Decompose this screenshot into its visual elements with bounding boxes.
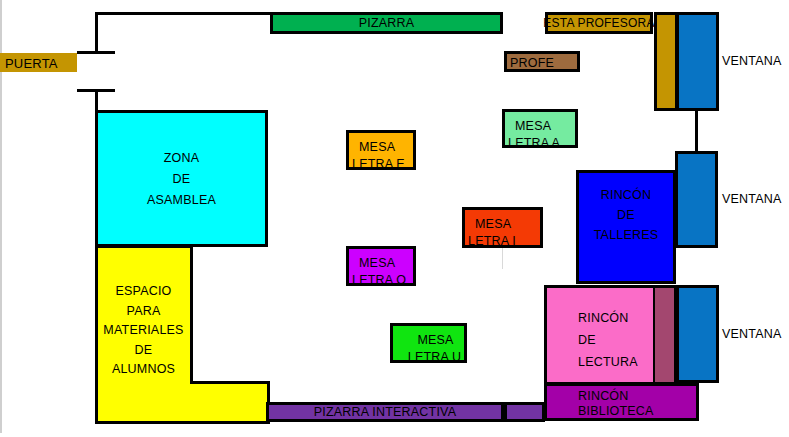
- gold-cabinet-strip: [654, 12, 678, 111]
- zona-asamblea-label: ZONA DE ASAMBLEA: [95, 148, 268, 211]
- espacio-materiales-label: ESPACIO PARA MATERIALES DE ALUMNOS: [95, 282, 192, 380]
- pizarra-shape: PIZARRA: [270, 12, 503, 34]
- window-3-label: VENTANA: [722, 328, 782, 341]
- puerta-label: PUERTA: [0, 53, 77, 72]
- rincon-lectura-label: RINCÓN DE LECTURA: [578, 307, 658, 373]
- rincon-biblioteca-label: RINCÓN BIBLIOTECA: [578, 389, 654, 419]
- rincon-talleres-label: RINCÓN DE TALLERES: [576, 185, 676, 245]
- classroom-floorplan: PUERTA PIZARRA ESTA PROFESORA PROFE VENT…: [0, 0, 789, 437]
- pizarra-label: PIZARRA: [359, 17, 415, 30]
- door-jamb-top: [77, 51, 115, 54]
- window-2-label: VENTANA: [722, 193, 782, 206]
- mesa-letra-o-shape: MESA LETRA O: [346, 246, 416, 286]
- window-1-label: VENTANA: [722, 55, 782, 68]
- window-1-shape: [676, 12, 719, 111]
- profe-label: PROFE: [507, 54, 577, 70]
- mesa-letra-i-shape: MESA LETRA I: [462, 207, 543, 248]
- wall-window-connector: [695, 109, 698, 153]
- gridline-artifact: [502, 248, 503, 269]
- esta-profesora-label: ESTA PROFESORA: [543, 17, 654, 29]
- pizarra-interactiva-shape: PIZARRA INTERACTIVA: [266, 402, 504, 422]
- mesa-letra-e-shape: MESA LETRA E: [346, 130, 416, 170]
- mesa-letra-u-shape: MESA LETRA U: [390, 323, 467, 363]
- window-2-shape: [675, 151, 718, 248]
- pizarra-interactiva-side-segment: [504, 402, 545, 422]
- wall-left-upper: [95, 12, 98, 54]
- esta-profesora-shape: ESTA PROFESORA: [545, 12, 653, 34]
- mesa-letra-a-shape: MESA LETRA A: [502, 109, 578, 148]
- pizarra-interactiva-label: PIZARRA INTERACTIVA: [314, 406, 456, 419]
- profe-desk-shape: PROFE: [504, 51, 580, 72]
- window-3-shape: [676, 285, 719, 383]
- rincon-biblioteca-shape: RINCÓN BIBLIOTECA: [544, 383, 699, 421]
- wall-top: [95, 12, 273, 15]
